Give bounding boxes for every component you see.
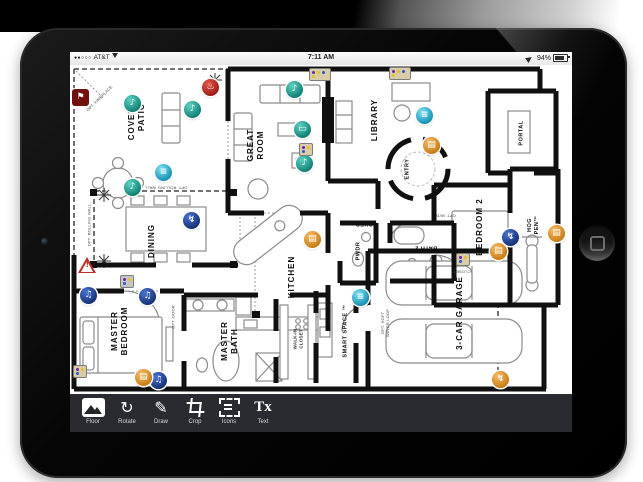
speaker-icon[interactable]: ♪ [296,155,313,172]
speaker-icon[interactable]: ♪ [184,101,201,118]
screen: ●●○○○ AT&T 7:11 AM 94% [70,52,572,432]
speaker-icon[interactable]: ♪ [286,81,303,98]
floor-plan-canvas[interactable]: COVERED PATIO GREAT ROOM LIBRARY ENTRY P… [70,65,572,394]
speaker-icon[interactable]: ♪ [124,179,141,196]
home-button[interactable] [579,225,615,261]
room-label-foyer: FOYER [355,220,376,227]
keypad-icon[interactable] [120,275,134,288]
floor-image-icon [82,398,105,417]
draw-button[interactable]: ✎ Draw [144,397,178,430]
cleaning-tool-icon[interactable]: ↯ [183,212,200,229]
door-icon[interactable]: ▤ [423,137,440,154]
crop-button[interactable]: Crop [178,397,212,430]
keypad-icon[interactable] [73,365,87,378]
editor-toolbar: Floor ↻ Rotate ✎ Draw Crop Icons [70,394,572,432]
room-label-entry: ENTRY [405,159,412,180]
floor-button[interactable]: Floor [76,397,110,430]
speaker-icon[interactable]: ♪ [124,95,141,112]
keypad-icon[interactable] [389,67,411,80]
keypad-icon[interactable] [456,253,470,266]
room-label-master-bath: MASTER BATH [220,321,240,361]
keypad-icon[interactable] [299,143,313,156]
power-icon[interactable]: ↯ [502,229,519,246]
keypad-icon[interactable] [309,68,331,81]
red-badge-icon[interactable]: ⚑ [72,89,89,106]
room-label-bedroom-2: BEDROOM 2 [475,198,485,255]
room-label-dining: DINING [147,224,157,258]
music-speaker-icon[interactable]: ♫ [80,287,97,304]
shade-icon[interactable]: ≡ [416,107,433,124]
stamp-icon [219,398,240,417]
blind-icon[interactable]: ▤ [304,231,321,248]
room-label-smart-space: SMART SPACE ™ [343,304,350,357]
text-icon: Tx [254,400,272,415]
note-closet: CLOSET [453,269,470,274]
door-icon[interactable]: ▤ [548,225,565,242]
icons-button[interactable]: Icons [212,397,246,430]
warning-triangle-icon[interactable]: ! [78,257,96,273]
room-label-garage: 3-CAR GARAGE [455,276,465,350]
door-icon[interactable]: ▤ [135,369,152,386]
music-speaker-icon[interactable]: ♫ [150,372,167,389]
note-opt-rolling-wall-2: OPT. ROLLING WALL [145,185,188,190]
room-label-portal: PORTAL [519,120,526,145]
room-label-master-bedroom: MASTER BEDROOM [110,307,130,356]
room-label-pwdr: PWDR [356,242,363,261]
note-opt-soft-water-loop: OPT. SOFT WATER LOOP [381,309,391,337]
battery-icon [553,54,568,62]
clock: 7:11 AM [70,54,572,61]
note-opt-rolling-wall: OPT. ROLLING WALL [88,204,93,247]
photo-stage: ●●○○○ AT&T 7:11 AM 94% [0,0,643,482]
tv-icon[interactable]: ▭ [294,121,311,138]
battery-percent: 94% [537,55,551,62]
fireplace-icon[interactable]: ♨ [202,79,219,96]
shade-icon[interactable]: ≡ [155,164,172,181]
garage-door-icon[interactable]: ▤ [490,243,507,260]
front-camera [41,238,48,245]
rotate-icon: ↻ [120,400,133,416]
room-label-bath-2: BATH 2 [415,244,437,251]
room-label-hog-pen: HOG PEN™ [527,216,541,235]
shade-icon[interactable]: ≡ [352,289,369,306]
pencil-icon: ✎ [154,400,167,416]
note-opt-door: OPT. DOOR [172,305,177,329]
ipad-device: ●●○○○ AT&T 7:11 AM 94% [20,28,627,478]
lightning-icon[interactable]: ↯ [492,371,509,388]
music-speaker-icon[interactable]: ♫ [139,288,156,305]
location-icon [525,53,536,63]
room-label-kitchen: KITCHEN [287,256,297,299]
room-label-walk-in-closet: WALK-IN CLOSET [292,329,303,350]
crop-icon [188,400,203,415]
note-opt-wd: OPT. W/D [436,213,455,218]
room-label-library: LIBRARY [370,99,380,141]
rotate-button[interactable]: ↻ Rotate [110,397,144,430]
status-bar: ●●○○○ AT&T 7:11 AM 94% [70,52,572,66]
text-button[interactable]: Tx Text [246,397,280,430]
room-label-great-room: GREAT ROOM [246,129,266,161]
